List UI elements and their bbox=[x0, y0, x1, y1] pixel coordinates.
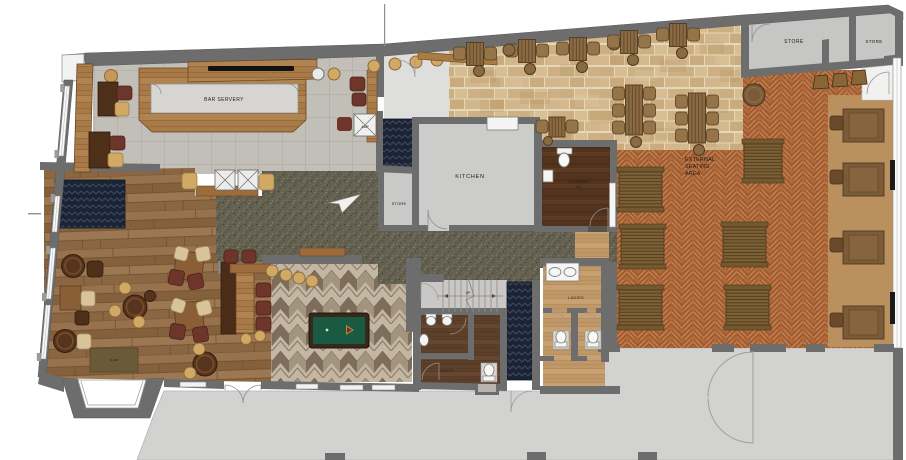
svg-text:STORE: STORE bbox=[865, 39, 882, 44]
svg-text:ACCESSIBLE: ACCESSIBLE bbox=[569, 180, 591, 184]
svg-text:STORE: STORE bbox=[392, 201, 407, 206]
svg-text:BAR SERVERY: BAR SERVERY bbox=[204, 97, 244, 103]
svg-text:WC: WC bbox=[576, 185, 582, 189]
svg-text:KITCHEN: KITCHEN bbox=[455, 174, 484, 180]
svg-text:AREA: AREA bbox=[685, 171, 701, 177]
svg-text:EXTERNAL: EXTERNAL bbox=[685, 157, 715, 163]
svg-text:CLOAK: CLOAK bbox=[110, 358, 119, 362]
svg-text:AMP: AMP bbox=[361, 125, 369, 129]
svg-text:LADIES: LADIES bbox=[568, 295, 584, 300]
svg-text:SEATING: SEATING bbox=[685, 164, 710, 170]
svg-text:UP: UP bbox=[466, 291, 471, 295]
svg-text:GENTS: GENTS bbox=[438, 368, 453, 373]
svg-text:STORE: STORE bbox=[784, 39, 804, 45]
